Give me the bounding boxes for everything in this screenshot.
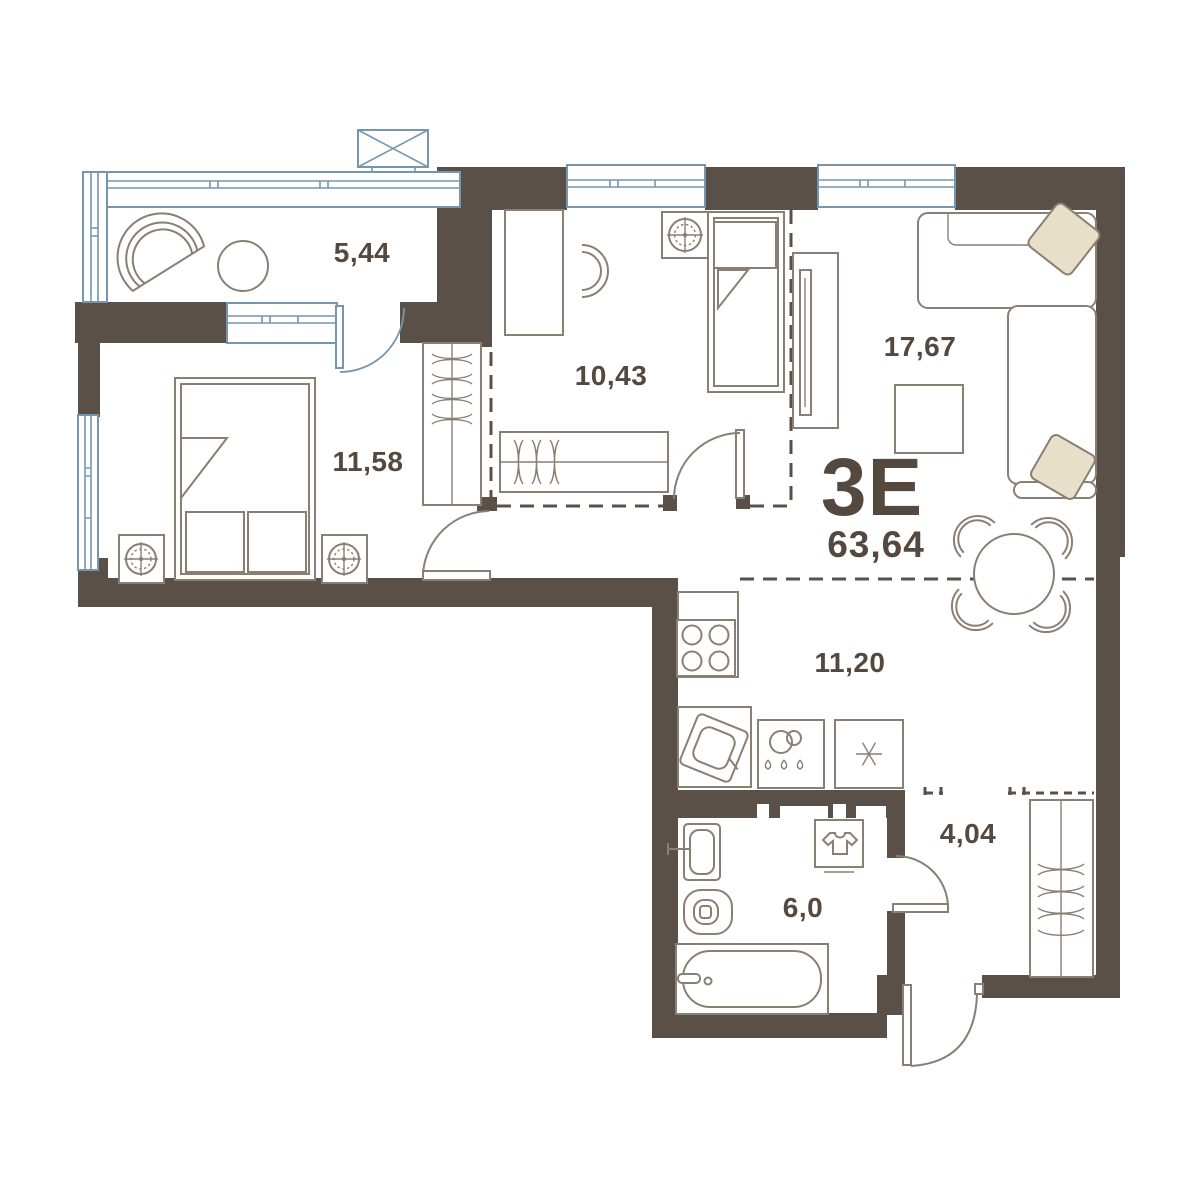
entrance-door xyxy=(903,984,983,1066)
low-wardrobe xyxy=(500,432,668,492)
room-area-children: 10,43 xyxy=(575,360,648,391)
bedroom-window xyxy=(78,415,98,570)
kitchen-furniture xyxy=(677,592,903,788)
bedroom-furniture xyxy=(119,343,481,583)
room-area-kitchen: 11,20 xyxy=(814,647,885,678)
plan-type-label: 3Е xyxy=(821,442,923,533)
living-room-window xyxy=(818,165,955,207)
wardrobe xyxy=(423,343,481,505)
plan-total-area: 63,64 xyxy=(827,524,925,565)
floor-plan-drawing: 5,44 11,58 10,43 17,67 11,20 6,0 4,04 3Е… xyxy=(0,0,1200,1200)
floor-plan: 5,44 11,58 10,43 17,67 11,20 6,0 4,04 3Е… xyxy=(0,0,1200,1200)
toilet xyxy=(684,890,732,934)
bedside-stool xyxy=(119,535,164,583)
single-bed xyxy=(708,212,784,392)
side-table xyxy=(218,241,268,291)
desk xyxy=(505,210,563,335)
room-area-bathroom: 6,0 xyxy=(783,892,823,923)
dining-table xyxy=(974,534,1054,614)
room-area-hallway: 4,04 xyxy=(940,818,997,849)
double-bed xyxy=(175,378,315,580)
stove xyxy=(677,620,735,676)
room-area-loggia: 5,44 xyxy=(334,237,391,268)
loggia-window-left xyxy=(83,172,107,302)
loggia-door xyxy=(336,306,404,372)
children-room-window xyxy=(567,165,705,207)
ac-basket-icon xyxy=(358,130,428,172)
dining-set xyxy=(942,506,1082,642)
bathroom-door xyxy=(893,856,948,912)
desk-chair xyxy=(582,245,608,297)
bathroom-furniture xyxy=(668,820,863,1014)
living-room-furniture xyxy=(793,201,1102,642)
bedroom-loggia-window xyxy=(227,303,337,343)
vent-shaft-icon xyxy=(662,212,708,258)
fridge xyxy=(835,720,903,788)
tv-stand xyxy=(793,253,838,428)
washing-machine xyxy=(815,820,863,872)
loggia-window-top xyxy=(83,172,460,207)
dishwasher xyxy=(758,720,824,788)
bathtub xyxy=(676,944,828,1014)
armchair xyxy=(101,197,206,292)
children-room-door xyxy=(674,430,744,499)
hall-wardrobe xyxy=(1030,800,1093,977)
room-area-bedroom: 11,58 xyxy=(332,446,403,477)
sink xyxy=(678,707,752,787)
room-area-living: 17,67 xyxy=(884,331,957,362)
bedroom-door xyxy=(423,511,490,580)
hallway-furniture xyxy=(1030,800,1093,977)
bedside-stool xyxy=(322,535,367,583)
loggia-furniture xyxy=(101,197,268,292)
